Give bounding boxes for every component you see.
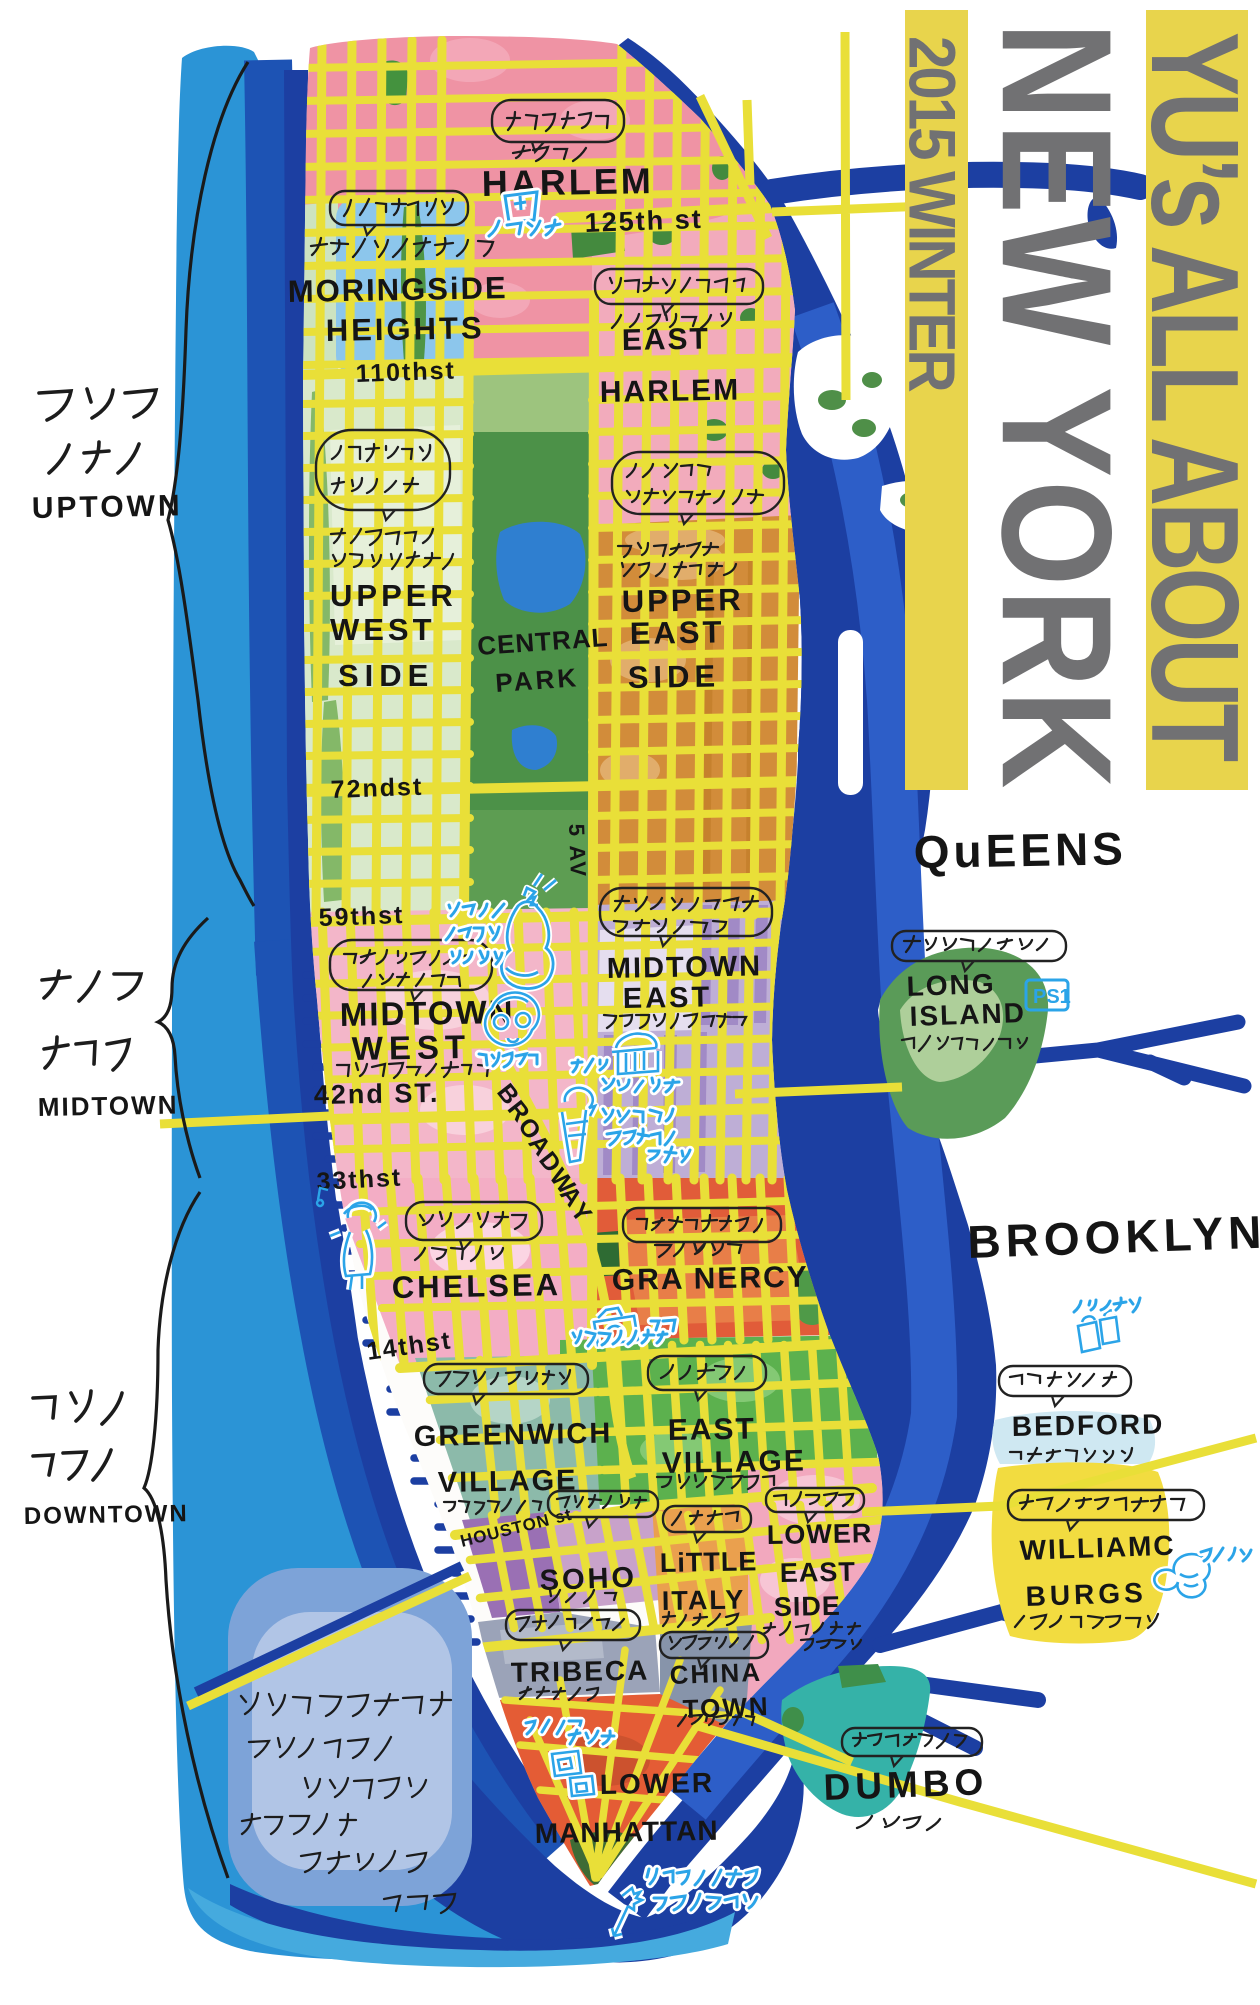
svg-text:GRA NERCY: GRA NERCY: [612, 1261, 809, 1297]
svg-text:BURGS: BURGS: [1025, 1577, 1147, 1612]
svg-text:2015 WINTER: 2015 WINTER: [895, 36, 968, 392]
svg-text:LOWER: LOWER: [767, 1518, 873, 1550]
svg-text:GREENWICH: GREENWICH: [414, 1418, 613, 1453]
svg-text:DUMBO: DUMBO: [823, 1761, 989, 1808]
svg-text:HEIGHTS: HEIGHTS: [326, 310, 485, 348]
svg-text:QuEENS: QuEENS: [913, 822, 1127, 878]
svg-text:EAST: EAST: [630, 614, 725, 651]
svg-text:DOWNTOWN: DOWNTOWN: [24, 1500, 189, 1530]
svg-text:BEDFORD: BEDFORD: [1012, 1408, 1165, 1442]
svg-text:110thst: 110thst: [355, 357, 456, 388]
svg-text:SIDE: SIDE: [628, 658, 721, 695]
svg-text:LONG: LONG: [906, 968, 996, 1002]
svg-text:72ndst: 72ndst: [330, 773, 424, 804]
svg-text:ISLAND: ISLAND: [909, 997, 1026, 1032]
svg-text:CHELSEA: CHELSEA: [392, 1267, 562, 1305]
svg-text:EAST: EAST: [780, 1557, 857, 1588]
svg-text:EAST: EAST: [623, 981, 713, 1015]
svg-text:YU’s ALL ABOUT: YU’s ALL ABOUT: [1125, 32, 1260, 761]
svg-text:TRIBECA: TRIBECA: [511, 1655, 650, 1688]
svg-text:ITALY: ITALY: [662, 1585, 746, 1616]
svg-text:59thst: 59thst: [318, 901, 405, 932]
svg-text:PARK: PARK: [494, 662, 580, 698]
svg-text:UPTOWN: UPTOWN: [32, 489, 183, 525]
svg-text:VILLAGE: VILLAGE: [662, 1444, 807, 1480]
svg-text:EAST: EAST: [668, 1412, 757, 1447]
svg-text:42nd ST.: 42nd ST.: [314, 1078, 440, 1110]
svg-text:MIDTOWN: MIDTOWN: [607, 950, 763, 985]
svg-text:33thst: 33thst: [316, 1164, 403, 1196]
svg-text:SIDE: SIDE: [774, 1591, 842, 1622]
svg-text:MORINGSiDE: MORINGSiDE: [288, 270, 508, 309]
svg-text:SIDE: SIDE: [338, 658, 434, 693]
svg-text:LOWER: LOWER: [600, 1767, 715, 1800]
svg-text:NEW YORK: NEW YORK: [969, 22, 1144, 792]
svg-text:SOHO: SOHO: [539, 1562, 637, 1597]
svg-text:5 AV: 5 AV: [564, 823, 591, 878]
svg-text:EAST: EAST: [622, 322, 711, 357]
svg-text:MIDTOWN: MIDTOWN: [38, 1090, 179, 1122]
svg-text:CHINA: CHINA: [669, 1657, 762, 1690]
svg-text:WEST: WEST: [351, 1028, 471, 1067]
svg-text:WILLIAMC: WILLIAMC: [1019, 1530, 1176, 1566]
svg-text:VILLAGE: VILLAGE: [438, 1465, 578, 1499]
svg-text:HARLEM: HARLEM: [600, 374, 741, 409]
svg-text:UPPER: UPPER: [622, 582, 744, 619]
svg-text:WEST: WEST: [330, 612, 436, 647]
svg-text:BROOKLYN: BROOKLYN: [967, 1206, 1260, 1268]
svg-text:MANHATTAN: MANHATTAN: [535, 1815, 719, 1849]
svg-text:PS1: PS1: [1033, 986, 1071, 1008]
svg-text:125th st: 125th st: [584, 204, 703, 238]
svg-text:UPPER: UPPER: [330, 578, 457, 613]
svg-text:LiTTLE: LiTTLE: [660, 1546, 758, 1578]
